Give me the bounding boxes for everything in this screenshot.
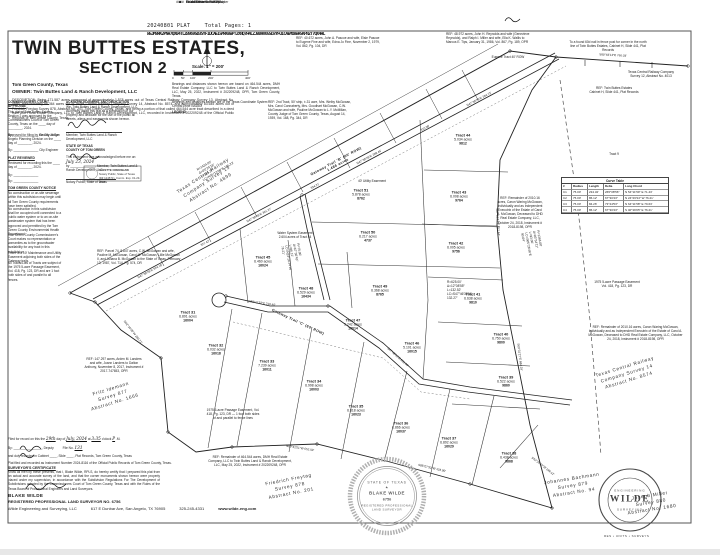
bearing-basis-note: Bearings and distances shown hereon are … [172,82,280,99]
surveyor-name: BLAKE WILDE [8,493,43,498]
curve-table: Curve Table # Radius Length Delta Long C… [561,177,669,214]
scale-tick-label: 0 [172,76,174,80]
notary-stamp: SUZETTE CRENSHAW Notary Public, State of… [99,168,141,184]
plat-note: REF: Parcel 74, 8.847 acres, C.W. McGowa… [97,249,181,265]
legend-symbol-icon: #### [176,0,184,5]
tract-label: Tract 46 5.101 acres 16015 [403,341,421,354]
tract-label: Tract 32 6.032 acres 16018 [207,343,225,356]
plat-document-page: 20240801 PLAT Total Pages: 1 W5JM8RK2PNH… [0,0,720,555]
scale-tick-label: 200′ [208,76,214,80]
m-text: .M. [116,437,120,441]
scale-tick-label: 50′ [181,76,185,80]
tract-label: Tract 43 6.008 acres 9764 [450,190,468,203]
plat-note: Water System Easement 2.604 acres of Tra… [277,231,313,239]
scale-tick-label: 400′ [245,76,251,80]
dedication-title: ACKNOWLEDGMENT AND DEDICATION [66,100,142,104]
file-number-label: 20240801 PLAT [147,23,190,29]
coordinate-system-note: Bearings and distances hereon are of the… [172,100,276,108]
curve-table-row: C475.00′ 86.12′67°30′43″ S 40°39′05″ E 7… [562,207,668,213]
file-no-label: File No. [63,446,74,450]
signer-name-line: Member, Twin Buttes Land & Ranch Develop… [66,132,122,141]
plat-note: REF: Remainder of 464.544 acres, DMH Rea… [206,455,294,467]
logo-bottom-text: SURVEYING [605,507,655,511]
plat-note: REF: 48.972 acres, John H. Reynolds and … [446,32,534,44]
seal-surveyor-text: LAND SURVEYOR [357,507,417,511]
plat-note: 40′ Utility Easement [355,179,389,183]
tract-label: Tract 40 6.750 acres 9800 [492,332,510,345]
pages-label: Total Pages: 1 [205,23,252,29]
plat-note: REF: 147.297 acres, Arden M. Landers and… [84,357,144,373]
tract-label: Tract 31 6.891 acres 16004 [179,310,197,323]
scale-tick-label: 100′ [190,76,196,80]
filed-time-handwritten: 3:35 [91,436,100,441]
tract-label: Tract 50 6.217 acres 4737 [359,230,377,243]
tract-label: Tract 51 5.878 acres 8762 [352,188,370,201]
plat-note: REF: Remainder of 2010.16 acres, Caron W… [588,325,683,341]
firm-name: Wilde Engineering and Surveying, LLC [8,506,77,511]
notary-id-exp: ID# 124573 • Comm. Exp. 01-23-2025 [99,176,141,184]
legend-item: #### 911 Address [176,0,203,5]
surveyor-seal: STATE OF TEXAS ★ BLAKE WILDE 6756 REGIST… [357,480,417,511]
tract-label: Tract 42 6.005 acres 9756 [447,241,465,254]
survey-dashed-line [560,80,601,455]
tract-label: Tract 44 5.034 acres 9812 [454,133,472,146]
tract-label: Tract 49 6.368 acres 8765 [371,284,389,297]
day-of-text: day of [57,437,66,441]
plat-note: REF: 2nd Tract, 50′ strip, ±.31 acre, Mr… [268,100,352,120]
plat-note: 1975 5-acre Passage Easement, Vol. 418, … [205,408,261,420]
recorded-line: and duly recorded in Cabinet ____, Slide… [8,454,173,458]
filed-date-handwritten: 29th [46,436,56,441]
surveyor-registration: REGISTERED PROFESSIONAL LAND SURVEYOR NO… [8,499,121,504]
tract-label: Tract 36 6.866 acres 16037 [392,421,410,434]
plat-note: Eugene Tract 40′ ROW [486,55,530,59]
tract-label: Tract 38 6.438 acres 9868 [500,451,518,464]
tract-label: Tract 48 6.529 acres 16434 [297,286,315,299]
tract-label: Tract 34 6.998 acres 16003 [305,379,323,392]
tract-label: Tract 39 6.522 acres 9860 [497,375,515,388]
instrument-line: Plat filed and recorded as Instrument Nu… [8,461,173,465]
file-no-handwritten: 131 [75,445,83,450]
deputy-line: By: ________________, Deputy [8,446,54,450]
county-of-line: COUNTY OF TOM GREEN [66,148,142,152]
tract-label: Tract 45 6.460 acres 16024 [254,255,272,268]
legend-title: LEGEND [172,110,186,114]
meridian-handwritten: P [112,436,115,441]
scan-edge [0,549,720,555]
plat-note: REF: Twin Buttes Estates Cabinet H, Slid… [583,86,645,94]
plat-note: REF: 40.672 acres, John A. Pascoe and wi… [296,36,382,48]
legend-item-label: 911 Address [186,0,203,5]
filed-text: Filed for record on this the [8,437,45,441]
plat-note: R=625.00′ Δ=12°08′55″ L=132.52′ LC=S47°4… [447,280,481,300]
oclock-text: o'clock [102,437,112,441]
plat-note: REF: Remainder of 2010.16 acres, Caron W… [497,196,543,229]
plat-note: 1975 5-acre Passage Easement Vol. 418, P… [585,280,649,288]
certificate-block: PLAT REVIEWED Reviewed for recording thi… [8,156,62,184]
surveyor-certificate: SURVEYOR'S CERTIFICATE Know all men by t… [8,466,160,491]
certificate-block: All Tracts/Lots of Tracts are subject of… [8,260,62,284]
certificate-body: Know all men by these presents, that I, … [8,470,160,491]
plat-note: Texas Central Railway Company Survey 12,… [612,70,690,78]
scale-label: Scale: 1″ = 200′ [192,64,224,69]
wilde-logo-stamp: ENGINEERING WILDE SURVEYING [605,489,655,512]
plat-note: To a found 60d nail in fence post for co… [568,40,648,52]
tract-label: Tract 47 5.242 acres 16014 [344,318,362,331]
legend: LEGEND [172,110,186,114]
certificate-block: Approved for filing by the City of San A… [8,132,62,154]
tract-label: Tract 33 7.239 acres 16011 [258,359,276,372]
plat-title: TWIN BUTTES ESTATES, [12,38,234,60]
plat-note: Tract 9 [600,152,628,156]
firm-phone: 325-245-4331 [179,506,204,511]
plat-subtitle: SECTION 2 [12,60,234,78]
firm-website: www.wilde-eng.com [218,506,256,511]
firm-address: 617 E Dunbar Ave, San Angelo, TX 76905 [91,506,166,511]
tract-label: Tract 37 6.892 acres 16029 [440,436,458,449]
logo-subtext: RES • UNITS • SURVEYS [604,534,649,538]
recording-header: 20240801 PLAT Total Pages: 1 W5JM8RK2PNH… [147,14,327,37]
road-d-lines [300,194,330,300]
cul-de-sac [212,293,226,307]
filed-month-handwritten: July, 2024 [66,436,87,441]
tract-label: Tract 35 6.818 acres 16023 [347,404,365,417]
dedication-body: We, Twin Buttes Land & Ranch Development… [66,105,142,122]
county-clerk-block: Filed for record on this the 29th day of… [8,436,173,465]
logo-wilde-text: WILDE [605,493,655,507]
